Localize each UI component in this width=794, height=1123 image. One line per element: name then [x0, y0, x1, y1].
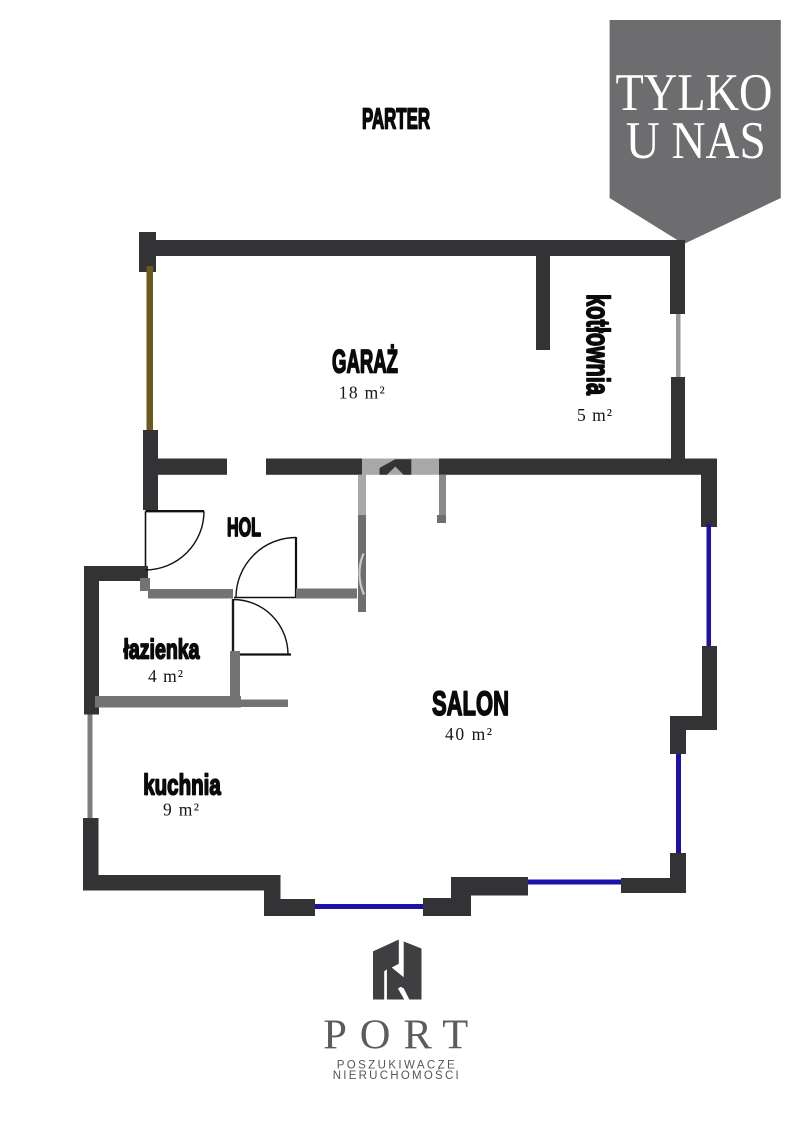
svg-text:U NAS: U NAS — [626, 112, 766, 170]
svg-text:40 m²: 40 m² — [445, 724, 492, 744]
svg-text:18 m²: 18 m² — [339, 383, 385, 403]
svg-text:GARAŻ: GARAŻ — [332, 344, 398, 380]
svg-text:5 m²: 5 m² — [577, 405, 612, 425]
svg-text:kuchnia: kuchnia — [143, 770, 221, 802]
svg-text:SALON: SALON — [432, 685, 509, 723]
svg-text:łazienka: łazienka — [124, 634, 200, 665]
svg-text:NIERUCHOMOŚCI: NIERUCHOMOŚCI — [333, 1069, 459, 1082]
svg-text:PARTER: PARTER — [362, 104, 430, 136]
svg-text:kotłownia: kotłownia — [580, 294, 616, 396]
svg-text:HOL: HOL — [227, 512, 261, 542]
svg-text:9 m²: 9 m² — [163, 800, 199, 820]
svg-text:4 m²: 4 m² — [148, 666, 183, 686]
